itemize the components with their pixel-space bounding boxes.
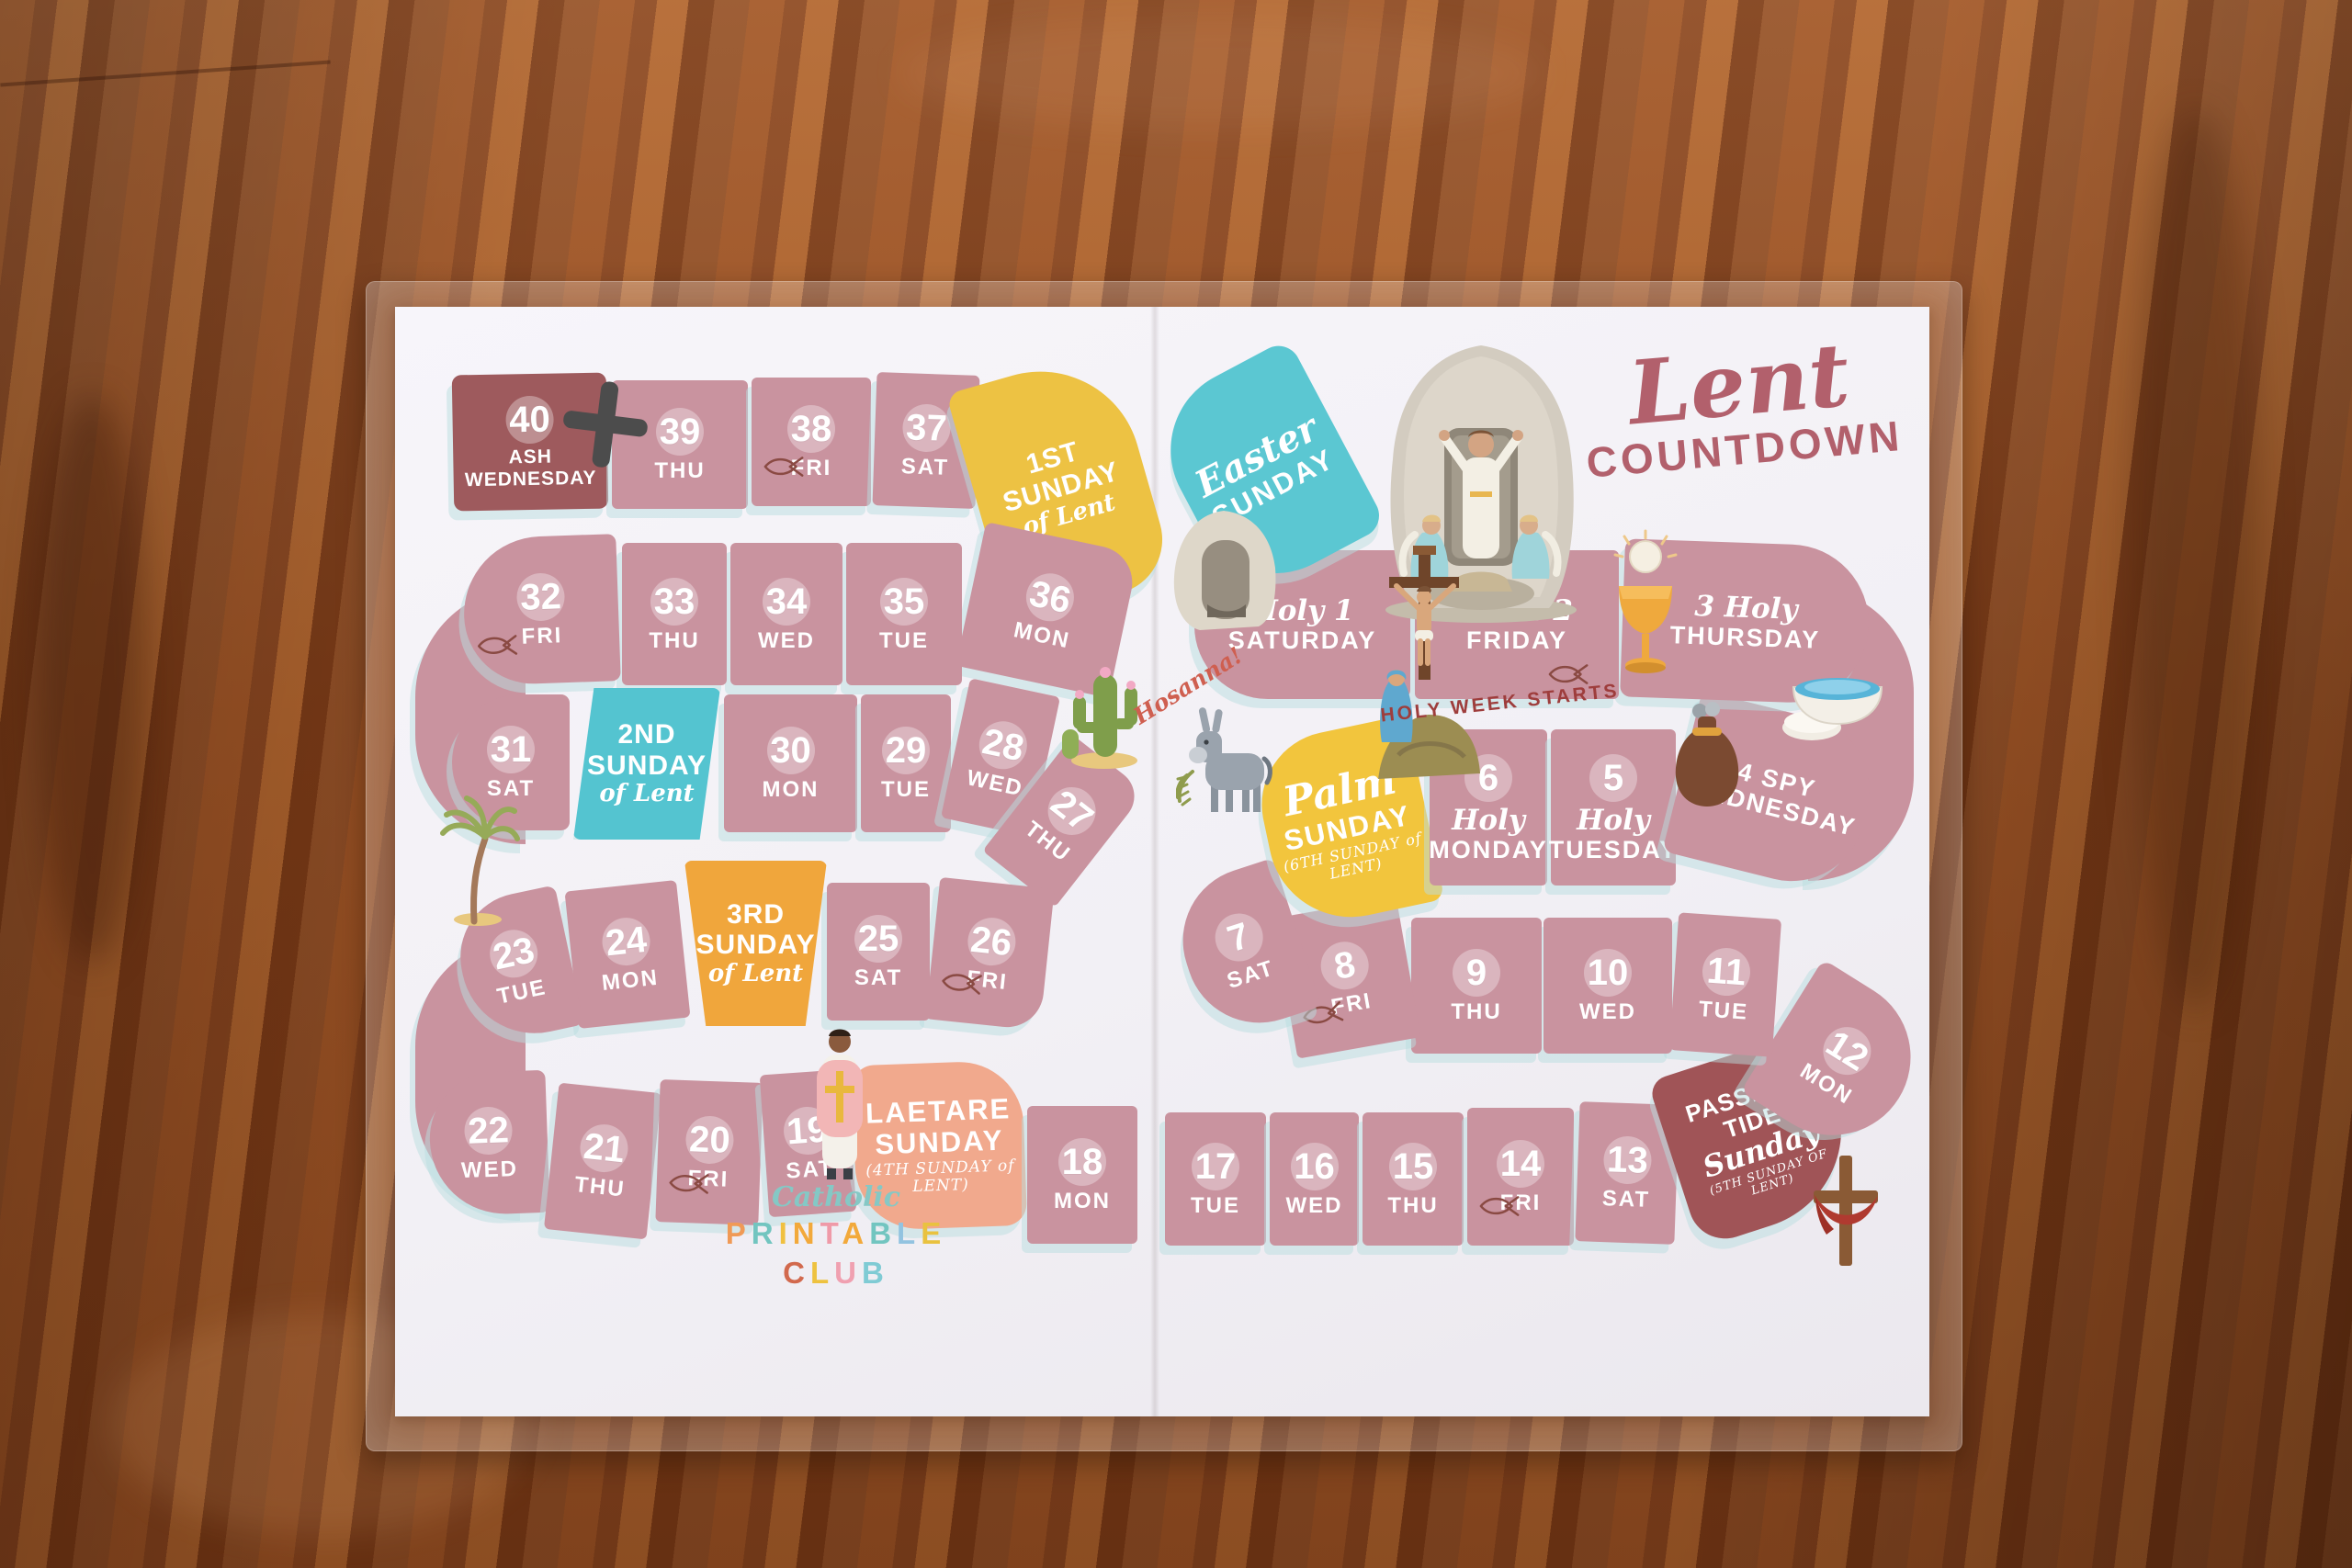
cell-day-30: 30MON (724, 694, 857, 832)
day-number: 12 (1820, 1025, 1874, 1078)
day-number: 38 (791, 411, 832, 447)
day-number-sticker: 36 (1020, 567, 1080, 627)
logo-letter: A (842, 1216, 869, 1250)
cell-s3: 3RDSUNDAYof Lent (684, 861, 827, 1026)
day-number: 28 (979, 723, 1027, 767)
crucifixion-scene-icon (1371, 544, 1488, 788)
day-number: 29 (886, 732, 927, 769)
logo-letter: B (862, 1256, 889, 1290)
day-number: 15 (1393, 1148, 1434, 1185)
logo-word-club: CLUB (698, 1254, 974, 1293)
cell-day-25: 25SAT (827, 883, 930, 1021)
cell-label: Holy (1577, 806, 1650, 836)
cell-day-34: 34WED (730, 543, 842, 685)
day-number: 30 (770, 732, 811, 769)
cell-day-15: 15THU (1363, 1112, 1464, 1246)
day-number-sticker: 5 (1588, 752, 1639, 804)
day-number-sticker: 37 (900, 401, 954, 455)
wood-grain (37, 395, 147, 964)
day-number-sticker: 31 (485, 724, 537, 775)
day-number-sticker: 24 (598, 914, 655, 971)
cell-label: Holy (1452, 806, 1525, 836)
cell-label: THU (654, 459, 705, 482)
day-number: 23 (490, 931, 537, 976)
logo-script-line: Catholic (698, 1181, 974, 1214)
cell-day-21: 21THU (544, 1083, 661, 1240)
day-number: 20 (689, 1121, 731, 1159)
cell-label: TUE (1698, 998, 1749, 1024)
cell-label: MON (763, 778, 820, 801)
cell-label: 2ND (617, 720, 675, 750)
cell-label: of Lent (708, 962, 803, 987)
cell-label: THU (1451, 1000, 1501, 1023)
wood-grain (2131, 110, 2260, 1010)
day-number: 10 (1588, 954, 1629, 991)
logo-letter: L (810, 1256, 834, 1290)
day-number-sticker: 18 (1057, 1136, 1108, 1188)
cell-label: SAT (900, 455, 949, 479)
day-number-sticker: 28 (973, 715, 1034, 775)
wood-grain (900, 18, 1543, 129)
cell-label: MON (1054, 1190, 1111, 1213)
cell-label: SAT (1601, 1187, 1650, 1212)
day-number-sticker: 22 (462, 1104, 515, 1157)
cell-label: TUESDAY (1549, 837, 1679, 863)
cell-day-29: 29TUE (861, 694, 951, 832)
day-number-sticker: 11 (1699, 945, 1754, 1000)
draped-cross-icon (1806, 1150, 1885, 1271)
cell-label: TUE (881, 778, 931, 801)
cell-label: WED (1286, 1194, 1343, 1217)
day-number-sticker: 34 (761, 576, 812, 627)
cell-day-5: 5HolyTUESDAY (1551, 729, 1676, 886)
cell-day-35: 35TUE (846, 543, 962, 685)
day-number-sticker: 20 (684, 1113, 737, 1167)
cell-s2: 2NDSUNDAYof Lent (573, 688, 720, 840)
cell-label: SUNDAY (696, 931, 816, 960)
empty-tomb-icon (1165, 505, 1284, 637)
day-number-sticker: 9 (1451, 947, 1502, 998)
cell-label: MONDAY (1429, 837, 1548, 863)
day-number: 33 (654, 583, 695, 620)
logo-letter: R (752, 1216, 779, 1250)
cell-label: WED (1579, 1000, 1636, 1023)
cell-label: 3 Holy (1694, 592, 1798, 625)
cell-label: WED (461, 1157, 519, 1182)
cell-day-38: 38FRI (752, 378, 871, 506)
day-number: 34 (766, 583, 808, 620)
catholic-printable-club-logo: Catholic PRINTABLE CLUB (698, 1181, 974, 1293)
day-number: 39 (660, 413, 701, 450)
cell-day-14: 14FRI (1467, 1108, 1574, 1246)
cell-label: SUNDAY (875, 1126, 1004, 1160)
ichthys-fish-icon (476, 633, 521, 659)
day-number: 36 (1026, 576, 1074, 620)
day-number-sticker: 26 (963, 913, 1020, 970)
cell-label: THU (1387, 1194, 1438, 1217)
ichthys-fish-icon (763, 455, 807, 479)
cell-day-11: 11TUE (1669, 912, 1781, 1056)
day-number-sticker: 32 (514, 570, 568, 624)
day-number-sticker: 23 (483, 923, 544, 984)
day-number: 32 (520, 579, 562, 617)
lent-countdown-board: 40ASHWEDNESDAY39THU38FRI37SAT1STSUNDAYof… (395, 307, 1929, 1416)
cell-label: THU (649, 629, 699, 652)
day-number: 25 (858, 920, 899, 957)
day-number-sticker: 40 (503, 393, 556, 446)
day-number-sticker: 38 (786, 403, 837, 455)
day-number-sticker: 33 (649, 576, 700, 627)
day-number-sticker: 30 (765, 725, 817, 776)
day-number: 24 (604, 921, 648, 962)
logo-letter: U (834, 1256, 862, 1290)
ichthys-fish-icon (1547, 662, 1591, 686)
day-number: 37 (906, 409, 948, 447)
logo-letter: T (820, 1216, 842, 1250)
cell-day-24: 24MON (564, 880, 690, 1029)
cell-day-10: 10WED (1543, 918, 1672, 1054)
ichthys-fish-icon (1478, 1194, 1522, 1218)
cell-label: SAT (854, 966, 902, 989)
logo-letter: P (726, 1216, 752, 1250)
day-number-sticker: 10 (1582, 947, 1634, 998)
logo-letter: L (897, 1216, 921, 1250)
day-number-sticker: 17 (1190, 1141, 1241, 1192)
day-number: 7 (1224, 918, 1255, 959)
cell-label: THU (573, 1173, 627, 1201)
day-number-sticker: 35 (878, 576, 930, 627)
day-number: 35 (884, 583, 925, 620)
day-number-sticker: 16 (1289, 1141, 1340, 1192)
day-number-sticker: 21 (576, 1121, 633, 1178)
photo-scene: 40ASHWEDNESDAY39THU38FRI37SAT1STSUNDAYof… (0, 0, 2352, 1568)
logo-letter: C (783, 1256, 810, 1290)
day-number-sticker: 25 (853, 913, 904, 964)
day-number: 13 (1607, 1142, 1649, 1180)
logo-letter: I (779, 1216, 793, 1250)
cell-label: of Lent (599, 782, 694, 807)
day-number: 18 (1062, 1144, 1103, 1180)
day-number: 40 (509, 401, 550, 439)
logo-letter: E (921, 1216, 946, 1250)
silver-bag-icon (1665, 700, 1749, 812)
cell-day-33: 33THU (622, 543, 727, 685)
day-number: 16 (1294, 1148, 1335, 1185)
day-number-sticker: 8 (1315, 936, 1374, 996)
day-number-sticker: 13 (1601, 1134, 1655, 1187)
chalice-host-icon (1610, 529, 1681, 687)
cell-label: TUE (1191, 1194, 1240, 1217)
day-number: 11 (1705, 953, 1747, 992)
day-number: 8 (1331, 945, 1358, 985)
center-fold-line (1150, 307, 1159, 1416)
cell-day-32: 32FRI (461, 534, 620, 686)
palm-tree-icon (432, 787, 520, 927)
cell-day-26: 26FRI (925, 877, 1055, 1031)
cell-day-16: 16WED (1270, 1112, 1359, 1246)
day-number: 21 (582, 1128, 626, 1168)
cell-day-9: 9THU (1411, 918, 1542, 1054)
ash-cross-icon (557, 377, 652, 472)
day-number-sticker: 14 (1495, 1138, 1546, 1190)
cell-label: THURSDAY (1669, 622, 1820, 653)
cell-label: WED (758, 629, 815, 652)
day-number-sticker: 15 (1387, 1141, 1439, 1192)
donkey-with-palm-icon (1176, 700, 1288, 821)
cell-label: MON (601, 966, 660, 996)
cell-label: ASH (508, 447, 552, 468)
cell-label: SUNDAY (587, 751, 707, 781)
day-number: 22 (468, 1111, 510, 1150)
cell-day-18: 18MON (1027, 1106, 1137, 1244)
day-number: 14 (1500, 1145, 1542, 1182)
cell-label: 3RD (727, 900, 785, 930)
logo-word-printable: PRINTABLE (698, 1214, 974, 1254)
logo-letter: N (793, 1216, 820, 1250)
cell-label: FRI (521, 625, 563, 649)
day-number-sticker: 29 (880, 725, 932, 776)
priest-figure-icon (803, 1025, 876, 1187)
cell-label: TUE (879, 629, 929, 652)
washing-bowl-icon (1781, 663, 1887, 742)
day-number: 17 (1195, 1148, 1237, 1185)
day-number: 31 (491, 731, 532, 768)
day-number: 26 (969, 921, 1013, 962)
day-number-sticker: 39 (654, 406, 706, 457)
day-number: 9 (1466, 954, 1487, 991)
cell-day-17: 17TUE (1165, 1112, 1266, 1246)
page-title: Lent COUNTDOWN (1576, 332, 1907, 486)
logo-letter: B (869, 1216, 897, 1250)
day-number: 5 (1603, 760, 1623, 796)
ichthys-fish-icon (939, 969, 985, 998)
